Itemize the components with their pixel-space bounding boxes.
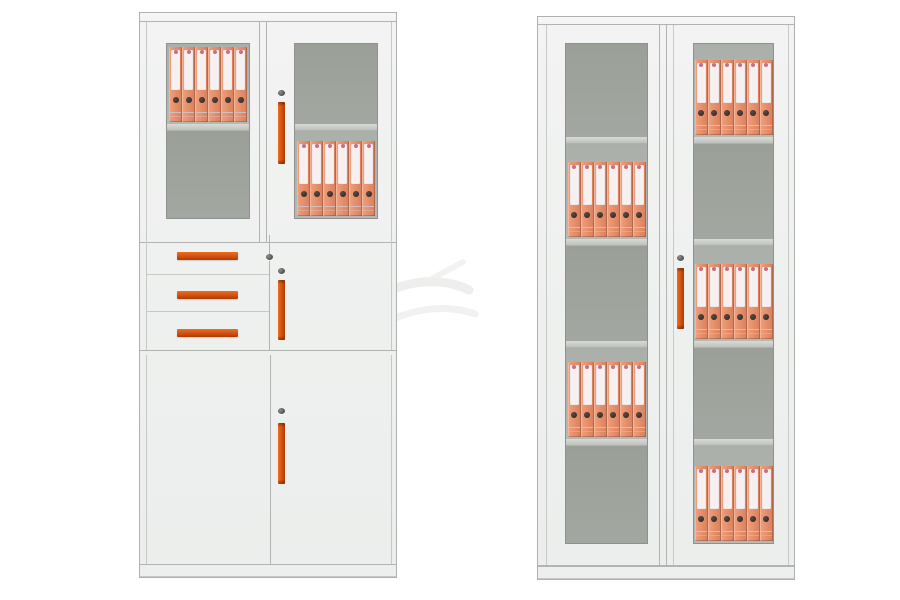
binder-label xyxy=(749,63,758,103)
binder-finger-hole xyxy=(737,314,743,320)
binder-finger-hole xyxy=(584,412,590,418)
binder-row xyxy=(695,264,773,339)
binder-row xyxy=(297,141,375,216)
binder-label-dot xyxy=(764,469,768,473)
binder-label-dot xyxy=(585,365,589,369)
binder-label-text xyxy=(569,227,580,234)
binder-finger-hole xyxy=(724,110,730,116)
binder-finger-hole xyxy=(225,97,231,103)
binder-label-text xyxy=(298,206,309,213)
binder-label xyxy=(697,469,706,509)
binder-label-dot xyxy=(315,144,319,148)
shelf-compartment xyxy=(566,348,647,440)
binder-label-dot xyxy=(725,63,729,67)
binder-label-dot xyxy=(725,267,729,271)
shelf-compartment xyxy=(566,144,647,240)
binder xyxy=(182,47,195,122)
binder xyxy=(568,162,581,237)
binder-row xyxy=(169,47,247,122)
shelf xyxy=(566,137,647,144)
binder-row xyxy=(568,162,646,237)
binder-label-dot xyxy=(239,50,243,54)
binder-label-text xyxy=(696,125,707,132)
binder xyxy=(581,362,594,437)
binder-label-dot xyxy=(611,165,615,169)
binder xyxy=(221,47,234,122)
binder-label-text xyxy=(621,427,632,434)
binder-label xyxy=(197,50,206,90)
upper-doors-section xyxy=(140,22,396,243)
binder-finger-hole xyxy=(327,191,333,197)
shelf xyxy=(167,124,249,131)
binder-finger-hole xyxy=(186,97,192,103)
binder-label xyxy=(710,63,719,103)
frame-line xyxy=(391,235,392,350)
shelf xyxy=(694,137,773,144)
binder-finger-hole xyxy=(763,110,769,116)
binder-label-dot xyxy=(598,165,602,169)
binder-label xyxy=(723,63,732,103)
binder-label-text xyxy=(761,531,772,538)
binder-finger-hole xyxy=(750,516,756,522)
binder-label-text xyxy=(569,427,580,434)
binder xyxy=(297,141,310,216)
binder-finger-hole xyxy=(698,516,704,522)
shelf-compartment xyxy=(694,246,773,341)
binder-finger-hole xyxy=(623,212,629,218)
binder-label-text xyxy=(748,329,759,336)
lower-doors-section xyxy=(140,355,396,566)
binder-label-dot xyxy=(738,267,742,271)
binder-label xyxy=(570,365,579,405)
binder-label xyxy=(338,144,347,184)
binder-label xyxy=(762,63,771,103)
binder xyxy=(708,466,721,541)
binder-finger-hole xyxy=(698,314,704,320)
door-frame-line xyxy=(673,25,674,565)
binder xyxy=(169,47,182,122)
binder-finger-hole xyxy=(711,314,717,320)
lock-icon xyxy=(278,90,285,96)
binder-label-dot xyxy=(751,469,755,473)
binder-label xyxy=(570,165,579,205)
binder-label xyxy=(325,144,334,184)
left-door-edge xyxy=(659,25,660,565)
product-photo xyxy=(0,0,900,600)
binder xyxy=(734,264,747,339)
binder xyxy=(607,162,620,237)
shelf-compartment xyxy=(566,246,647,341)
binder-label-dot xyxy=(354,144,358,148)
door-frame-line xyxy=(546,25,547,565)
binder-label-dot xyxy=(637,365,641,369)
binder-label-dot xyxy=(200,50,204,54)
binder-row xyxy=(568,362,646,437)
shelf xyxy=(566,239,647,246)
door-handle xyxy=(278,423,285,484)
binder-finger-hole xyxy=(353,191,359,197)
shelf-compartment xyxy=(295,44,377,124)
shelf-compartment xyxy=(694,144,773,240)
binder-label-text xyxy=(608,227,619,234)
binder-finger-hole xyxy=(763,314,769,320)
binder-label-text xyxy=(709,531,720,538)
binder-label xyxy=(710,469,719,509)
binder-label xyxy=(697,63,706,103)
binder xyxy=(721,466,734,541)
binder-label-dot xyxy=(302,144,306,148)
binder-label-text xyxy=(183,112,194,119)
binder-label-text xyxy=(696,531,707,538)
binder-finger-hole xyxy=(636,212,642,218)
binder-label xyxy=(223,50,232,90)
binder-label xyxy=(609,365,618,405)
binder-finger-hole xyxy=(571,212,577,218)
binder-finger-hole xyxy=(366,191,372,197)
binder-label xyxy=(596,165,605,205)
binder-label-dot xyxy=(624,365,628,369)
binder-label-text xyxy=(748,531,759,538)
drawer-stack xyxy=(147,235,269,351)
binder xyxy=(695,466,708,541)
binder-label xyxy=(697,267,706,307)
glass-door-left xyxy=(565,43,648,544)
binder-label-text xyxy=(595,227,606,234)
binder-label xyxy=(299,144,308,184)
binder-label-dot xyxy=(572,165,576,169)
binder xyxy=(310,141,323,216)
binder-label-text xyxy=(350,206,361,213)
binder-label xyxy=(762,469,771,509)
binder-label-text xyxy=(735,531,746,538)
binder xyxy=(594,362,607,437)
binder-label-text xyxy=(582,427,593,434)
door-handle xyxy=(278,102,285,164)
binder-label-dot xyxy=(598,365,602,369)
binder-finger-hole xyxy=(340,191,346,197)
shelf-compartment xyxy=(566,44,647,137)
binder-finger-hole xyxy=(724,516,730,522)
binder-finger-hole xyxy=(610,212,616,218)
frame-line xyxy=(391,355,392,566)
binder-label-dot xyxy=(624,165,628,169)
drawer-door-divider xyxy=(269,235,270,350)
binder-label xyxy=(635,365,644,405)
binder-label-text xyxy=(363,206,374,213)
binder-finger-hole xyxy=(238,97,244,103)
binder-label-text xyxy=(748,125,759,132)
binder-label-text xyxy=(735,125,746,132)
binder-label xyxy=(723,469,732,509)
binder-label-dot xyxy=(764,267,768,271)
binder-finger-hole xyxy=(314,191,320,197)
binder-label xyxy=(723,267,732,307)
shelf xyxy=(694,239,773,246)
binder-label xyxy=(622,365,631,405)
binder xyxy=(747,466,760,541)
middle-section xyxy=(140,235,396,351)
shelf xyxy=(694,341,773,348)
drawer xyxy=(147,274,269,311)
binder xyxy=(708,264,721,339)
binder-label xyxy=(609,165,618,205)
shelf xyxy=(566,341,647,348)
binder-label xyxy=(710,267,719,307)
binder-label-text xyxy=(722,125,733,132)
binder-label xyxy=(749,469,758,509)
glass-window-upper-left xyxy=(166,43,250,219)
binder-label-dot xyxy=(341,144,345,148)
lock-icon xyxy=(278,268,285,274)
binder-finger-hole xyxy=(698,110,704,116)
binder-label-text xyxy=(735,329,746,336)
binder-label-dot xyxy=(751,267,755,271)
binder xyxy=(747,264,760,339)
binder-label-text xyxy=(582,227,593,234)
binder-label-text xyxy=(324,206,335,213)
binder-finger-hole xyxy=(584,212,590,218)
binder-label xyxy=(583,365,592,405)
binder xyxy=(760,60,773,135)
shelf-compartment xyxy=(694,348,773,440)
binder xyxy=(594,162,607,237)
binder xyxy=(362,141,375,216)
binder-label-text xyxy=(722,329,733,336)
binder-label xyxy=(736,469,745,509)
drawer xyxy=(147,235,269,274)
tall-doors-section xyxy=(538,25,794,566)
binder-label-dot xyxy=(712,469,716,473)
frame-line xyxy=(146,355,147,566)
binder-label xyxy=(622,165,631,205)
binder xyxy=(633,362,646,437)
binder xyxy=(708,60,721,135)
glass-window-upper-right xyxy=(294,43,378,219)
binder-label xyxy=(312,144,321,184)
shelf-compartment xyxy=(566,446,647,543)
binder xyxy=(747,60,760,135)
binder-label-text xyxy=(634,227,645,234)
binder-finger-hole xyxy=(724,314,730,320)
binder-label-dot xyxy=(699,469,703,473)
binder-label xyxy=(351,144,360,184)
door-gap-line xyxy=(270,355,271,566)
binder xyxy=(620,162,633,237)
shelf-compartment xyxy=(167,131,249,218)
binder-row xyxy=(695,466,773,541)
lock-icon xyxy=(278,408,285,414)
shelf-compartment xyxy=(694,446,773,543)
binder-label-text xyxy=(595,427,606,434)
door-frame-line xyxy=(146,22,147,242)
binder-label-text xyxy=(761,329,772,336)
binder-label-dot xyxy=(738,469,742,473)
door-handle xyxy=(677,268,684,329)
binder-finger-hole xyxy=(212,97,218,103)
cabinet-top-cap xyxy=(140,13,396,22)
shelf xyxy=(295,124,377,131)
binder-finger-hole xyxy=(711,516,717,522)
binder-label-dot xyxy=(585,165,589,169)
binder-label-text xyxy=(761,125,772,132)
drawer xyxy=(147,311,269,351)
lock-icon xyxy=(677,255,684,261)
binder xyxy=(607,362,620,437)
binder-label-text xyxy=(709,329,720,336)
shelf-compartment xyxy=(295,131,377,218)
binder-label xyxy=(583,165,592,205)
binder-label xyxy=(762,267,771,307)
binder-label-dot xyxy=(187,50,191,54)
drawer-handle xyxy=(177,329,238,337)
cabinet-top-cap xyxy=(538,17,794,25)
binder-label-dot xyxy=(712,267,716,271)
shelf xyxy=(694,439,773,446)
door-frame-line xyxy=(788,25,789,565)
binder-label-text xyxy=(696,329,707,336)
binder-label xyxy=(736,63,745,103)
binder-label-dot xyxy=(712,63,716,67)
binder xyxy=(760,466,773,541)
binder-finger-hole xyxy=(636,412,642,418)
drawer-handle xyxy=(177,291,238,299)
binder-label-dot xyxy=(328,144,332,148)
binder-label-dot xyxy=(738,63,742,67)
binder-label xyxy=(596,365,605,405)
binder-finger-hole xyxy=(623,412,629,418)
binder xyxy=(760,264,773,339)
binder-label-dot xyxy=(611,365,615,369)
door-frame-line xyxy=(391,22,392,242)
binder-label-text xyxy=(634,427,645,434)
binder-finger-hole xyxy=(301,191,307,197)
binder-label-text xyxy=(222,112,233,119)
binder-label xyxy=(236,50,245,90)
drawer-handle xyxy=(177,252,238,260)
binder xyxy=(695,60,708,135)
shelf-compartment xyxy=(694,44,773,137)
binder-label-dot xyxy=(764,63,768,67)
right-cabinet xyxy=(537,16,795,580)
binder xyxy=(633,162,646,237)
left-door-edge xyxy=(259,22,260,242)
binder xyxy=(620,362,633,437)
binder xyxy=(323,141,336,216)
binder-label xyxy=(635,165,644,205)
binder-label-text xyxy=(196,112,207,119)
binder-label-dot xyxy=(367,144,371,148)
binder xyxy=(581,162,594,237)
binder-label-text xyxy=(209,112,220,119)
binder-label-dot xyxy=(572,365,576,369)
binder-label-dot xyxy=(699,267,703,271)
binder-label xyxy=(364,144,373,184)
binder-finger-hole xyxy=(173,97,179,103)
binder xyxy=(234,47,247,122)
cabinet-plinth xyxy=(140,564,396,577)
binder xyxy=(568,362,581,437)
binder xyxy=(734,466,747,541)
shelf xyxy=(566,439,647,446)
binder xyxy=(195,47,208,122)
binder-label-text xyxy=(170,112,181,119)
binder-label-text xyxy=(608,427,619,434)
binder xyxy=(336,141,349,216)
binder-label-dot xyxy=(637,165,641,169)
binder-finger-hole xyxy=(571,412,577,418)
binder-label-dot xyxy=(174,50,178,54)
binder-row xyxy=(695,60,773,135)
binder xyxy=(734,60,747,135)
binder-finger-hole xyxy=(763,516,769,522)
shelf-compartment xyxy=(167,44,249,124)
binder xyxy=(695,264,708,339)
door-handle xyxy=(278,280,285,340)
binder-label xyxy=(749,267,758,307)
binder-label-dot xyxy=(751,63,755,67)
drawer-lock-icon xyxy=(266,254,273,260)
binder xyxy=(721,60,734,135)
binder-label-text xyxy=(337,206,348,213)
cabinet-plinth xyxy=(538,566,794,579)
binder-label-text xyxy=(709,125,720,132)
binder-finger-hole xyxy=(737,516,743,522)
right-door-edge xyxy=(266,22,267,242)
binder-finger-hole xyxy=(199,97,205,103)
binder-label-text xyxy=(722,531,733,538)
binder-label-dot xyxy=(213,50,217,54)
glass-door-right xyxy=(693,43,774,544)
right-door-edge xyxy=(666,25,667,565)
binder-finger-hole xyxy=(597,412,603,418)
binder-label xyxy=(736,267,745,307)
binder xyxy=(208,47,221,122)
left-cabinet xyxy=(139,12,397,578)
binder-label xyxy=(210,50,219,90)
binder-label-dot xyxy=(226,50,230,54)
binder-finger-hole xyxy=(750,110,756,116)
binder xyxy=(721,264,734,339)
binder-finger-hole xyxy=(711,110,717,116)
binder-finger-hole xyxy=(737,110,743,116)
binder-label-text xyxy=(621,227,632,234)
binder-label-dot xyxy=(699,63,703,67)
binder-label-dot xyxy=(725,469,729,473)
binder-label-text xyxy=(311,206,322,213)
binder-label-text xyxy=(235,112,246,119)
binder-finger-hole xyxy=(750,314,756,320)
binder-finger-hole xyxy=(610,412,616,418)
binder xyxy=(349,141,362,216)
binder-label xyxy=(184,50,193,90)
binder-label xyxy=(171,50,180,90)
binder-finger-hole xyxy=(597,212,603,218)
